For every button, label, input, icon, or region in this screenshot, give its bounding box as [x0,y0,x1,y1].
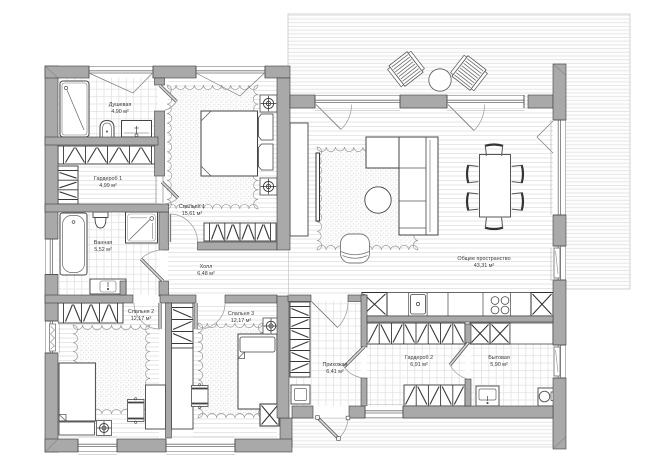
svg-text:Гардероб 2: Гардероб 2 [405,355,433,361]
svg-text:Душевая: Душевая [109,102,132,108]
svg-text:Бытовая: Бытовая [488,355,510,361]
svg-text:Холл: Холл [200,264,213,270]
svg-text:43,31 м²: 43,31 м² [474,263,495,269]
svg-text:Гардероб 1: Гардероб 1 [94,176,122,182]
svg-text:15,61 м²: 15,61 м² [182,211,203,217]
svg-text:Спальня 1: Спальня 1 [179,204,205,210]
svg-text:Прихожая: Прихожая [323,362,348,368]
svg-text:4,90 м²: 4,90 м² [111,109,129,115]
svg-text:5,52 м²: 5,52 м² [94,247,112,253]
svg-text:12,17 м²: 12,17 м² [131,316,152,322]
svg-text:4,99 м²: 4,99 м² [99,183,117,189]
svg-text:6,48 м²: 6,48 м² [197,271,215,277]
svg-text:12,17 м²: 12,17 м² [231,318,252,324]
svg-text:6,41 м²: 6,41 м² [326,369,344,375]
svg-text:Ванная: Ванная [94,240,113,246]
svg-text:Спальня 2: Спальня 2 [128,309,154,315]
svg-text:5,90 м²: 5,90 м² [490,362,508,368]
svg-text:Общее пространство: Общее пространство [457,256,510,262]
svg-text:Спальня 3: Спальня 3 [228,311,254,317]
svg-text:6,91 м²: 6,91 м² [410,362,428,368]
